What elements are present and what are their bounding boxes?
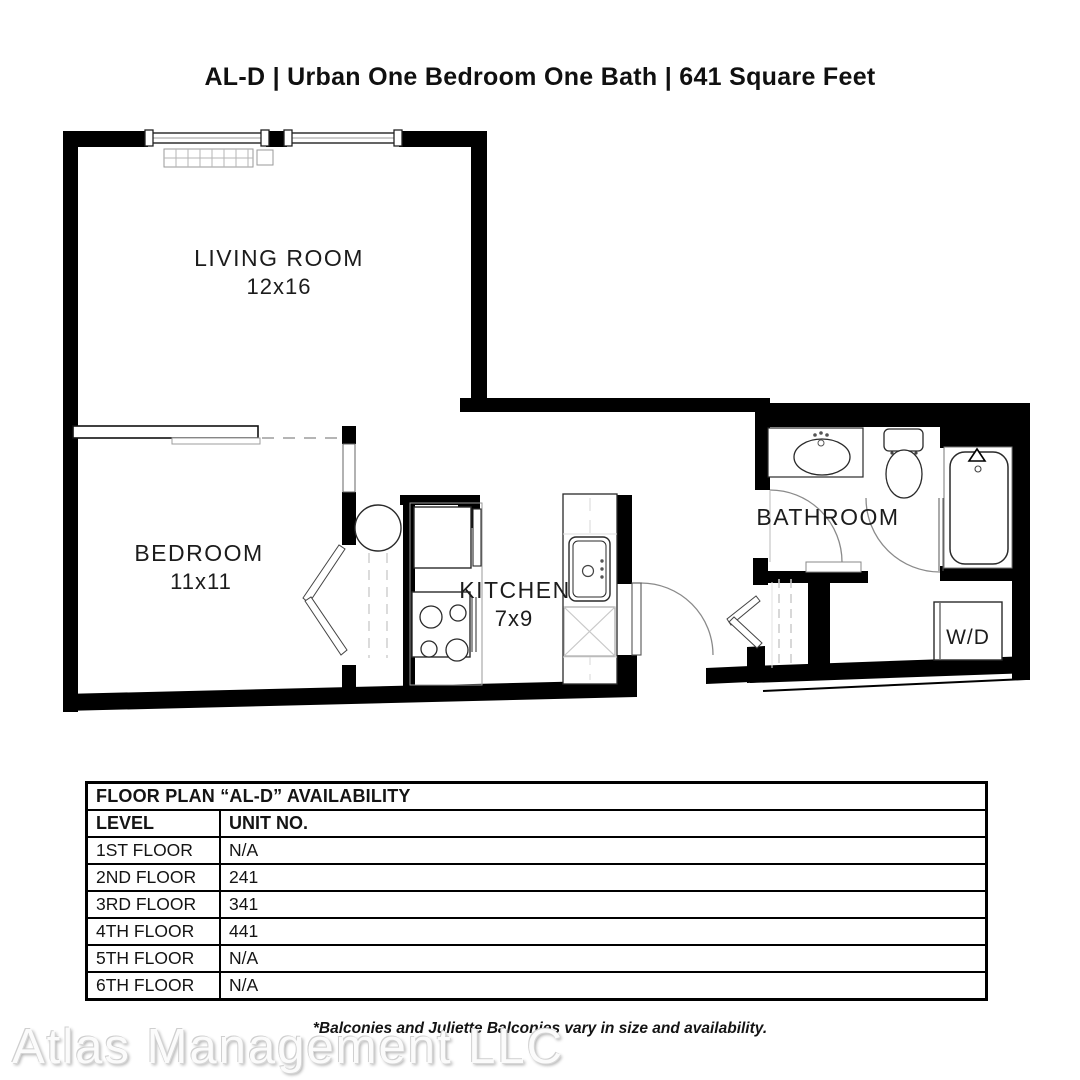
baseboard-heater: [164, 149, 273, 167]
bathroom-vanity-sink: [768, 428, 863, 477]
level-cell: 2ND FLOOR: [87, 864, 221, 891]
floor-plan-sheet: AL-D | Urban One Bedroom One Bath | 641 …: [0, 0, 1080, 1080]
column-header-unit: UNIT NO.: [220, 810, 987, 837]
washer-dryer-label: W/D: [946, 626, 990, 649]
level-cell: 4TH FLOOR: [87, 918, 221, 945]
level-cell: 1ST FLOOR: [87, 837, 221, 864]
living-room-dimensions: 12x16: [247, 274, 312, 299]
walls: [63, 131, 1030, 712]
unit-cell: N/A: [220, 972, 987, 1000]
bifold-door-panel: [305, 597, 347, 655]
table-row: 3RD FLOOR 341: [87, 891, 987, 918]
bathroom-threshold: [806, 562, 861, 572]
unit-cell: N/A: [220, 945, 987, 972]
window-living-right: [289, 133, 397, 143]
entry-door: [632, 583, 713, 655]
bedroom-dimensions: 11x11: [170, 569, 232, 594]
dishwasher: [564, 607, 615, 656]
kitchen-sink: [569, 537, 610, 601]
bathtub: [944, 447, 1012, 568]
refrigerator: [414, 507, 481, 568]
table-row: 4TH FLOOR 441: [87, 918, 987, 945]
toilet: [884, 429, 923, 498]
bifold-door-panel: [729, 617, 762, 648]
table-row: 2ND FLOOR 241: [87, 864, 987, 891]
table-row: 1ST FLOOR N/A: [87, 837, 987, 864]
bifold-door-panel: [303, 545, 345, 603]
kitchen-label: KITCHEN: [459, 577, 570, 603]
bedroom-label: BEDROOM: [134, 540, 263, 566]
unit-cell: 441: [220, 918, 987, 945]
availability-table: FLOOR PLAN “AL-D” AVAILABILITY LEVEL UNI…: [85, 781, 988, 1001]
table-title-row: FLOOR PLAN “AL-D” AVAILABILITY: [87, 783, 987, 811]
table-header-row: LEVEL UNIT NO.: [87, 810, 987, 837]
table-title: FLOOR PLAN “AL-D” AVAILABILITY: [87, 783, 987, 811]
kitchen-dimensions: 7x9: [495, 606, 533, 631]
living-room-label: LIVING ROOM: [194, 245, 364, 271]
unit-cell: 341: [220, 891, 987, 918]
level-cell: 6TH FLOOR: [87, 972, 221, 1000]
unit-cell: N/A: [220, 837, 987, 864]
table-row: 6TH FLOOR N/A: [87, 972, 987, 1000]
level-cell: 3RD FLOOR: [87, 891, 221, 918]
bathroom-label: BATHROOM: [756, 504, 899, 530]
bedroom-sliding-door: [73, 426, 355, 492]
level-cell: 5TH FLOOR: [87, 945, 221, 972]
unit-cell: 241: [220, 864, 987, 891]
window-living-left: [150, 133, 264, 143]
watermark: Atlas Management LLC: [12, 1019, 564, 1075]
water-heater: [355, 505, 401, 551]
column-header-level: LEVEL: [87, 810, 221, 837]
table-row: 5TH FLOOR N/A: [87, 945, 987, 972]
